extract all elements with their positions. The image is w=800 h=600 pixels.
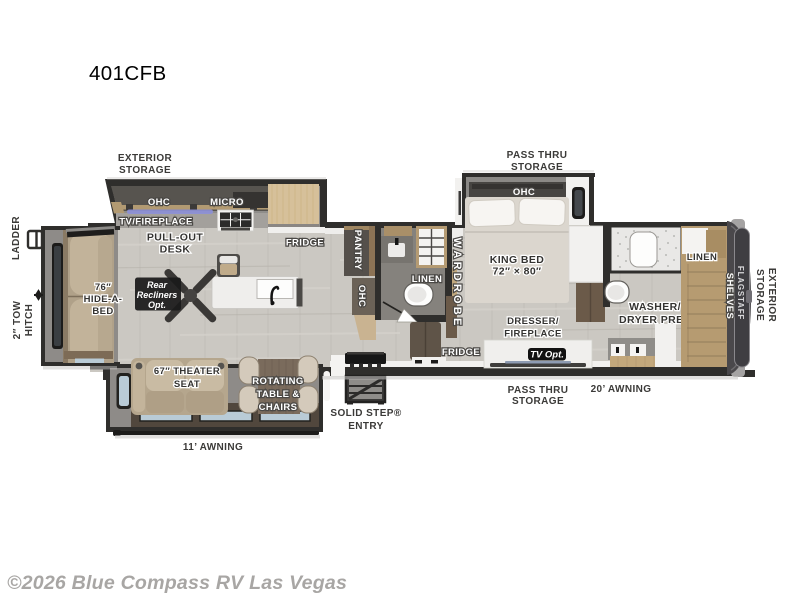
svg-text:Rear: Rear: [147, 280, 168, 290]
svg-text:EXTERIOR: EXTERIOR: [766, 268, 777, 323]
svg-text:DRESSER/: DRESSER/: [507, 316, 559, 327]
svg-text:EXTERIOR: EXTERIOR: [118, 153, 173, 164]
svg-text:FLAGSTAFF: FLAGSTAFF: [736, 266, 745, 320]
svg-text:WARDROBE: WARDROBE: [451, 238, 463, 329]
svg-text:TV Opt.: TV Opt.: [530, 350, 564, 361]
svg-text:OHC: OHC: [356, 285, 367, 307]
svg-text:PULL-OUT: PULL-OUT: [147, 232, 203, 244]
svg-text:KING BED: KING BED: [490, 254, 545, 266]
svg-text:TV/FIREPLACE: TV/FIREPLACE: [119, 217, 192, 228]
svg-text:DESK: DESK: [160, 244, 191, 256]
svg-text:OHC: OHC: [513, 187, 535, 198]
svg-text:STORAGE: STORAGE: [119, 165, 171, 176]
svg-text:SHELVES: SHELVES: [724, 273, 735, 319]
svg-text:11’ AWNING: 11’ AWNING: [183, 442, 243, 453]
svg-text:WASHER/: WASHER/: [629, 301, 681, 313]
svg-text:Recliners: Recliners: [137, 290, 178, 300]
svg-text:FRIDGE: FRIDGE: [286, 238, 324, 249]
svg-text:FRIDGE: FRIDGE: [442, 347, 480, 358]
svg-text:FIREPLACE: FIREPLACE: [504, 329, 561, 340]
svg-text:STORAGE: STORAGE: [754, 269, 765, 321]
svg-text:67″ THEATER: 67″ THEATER: [154, 366, 220, 377]
svg-text:TABLE &: TABLE &: [256, 389, 299, 400]
svg-text:ROTATING: ROTATING: [252, 376, 303, 387]
svg-text:HIDE-A-: HIDE-A-: [84, 294, 123, 305]
svg-text:STORAGE: STORAGE: [512, 396, 564, 407]
svg-text:ENTRY: ENTRY: [348, 421, 384, 432]
svg-text:HITCH: HITCH: [24, 304, 35, 337]
svg-text:©2026 Blue Compass RV Las Vega: ©2026 Blue Compass RV Las Vegas: [7, 572, 347, 594]
svg-text:MICRO: MICRO: [210, 197, 244, 208]
svg-text:Opt.: Opt.: [148, 300, 166, 310]
svg-text:OHC: OHC: [148, 197, 170, 208]
svg-text:LINEN: LINEN: [687, 252, 718, 263]
svg-text:SEAT: SEAT: [174, 379, 200, 390]
svg-text:72″ × 80″: 72″ × 80″: [493, 266, 542, 278]
svg-text:2″ TOW: 2″ TOW: [12, 301, 23, 340]
svg-text:PANTRY: PANTRY: [352, 230, 363, 271]
svg-text:20’ AWNING: 20’ AWNING: [591, 384, 652, 395]
svg-text:PASS THRU: PASS THRU: [508, 385, 569, 396]
svg-text:BED: BED: [92, 306, 113, 317]
svg-text:LADDER: LADDER: [11, 216, 22, 260]
svg-text:LINEN: LINEN: [412, 274, 443, 285]
svg-text:SOLID STEP®: SOLID STEP®: [330, 408, 401, 419]
svg-text:76″: 76″: [95, 282, 111, 293]
svg-text:401CFB: 401CFB: [89, 62, 167, 85]
svg-text:CHAIRS: CHAIRS: [259, 402, 298, 413]
svg-text:PASS THRU: PASS THRU: [507, 150, 568, 161]
